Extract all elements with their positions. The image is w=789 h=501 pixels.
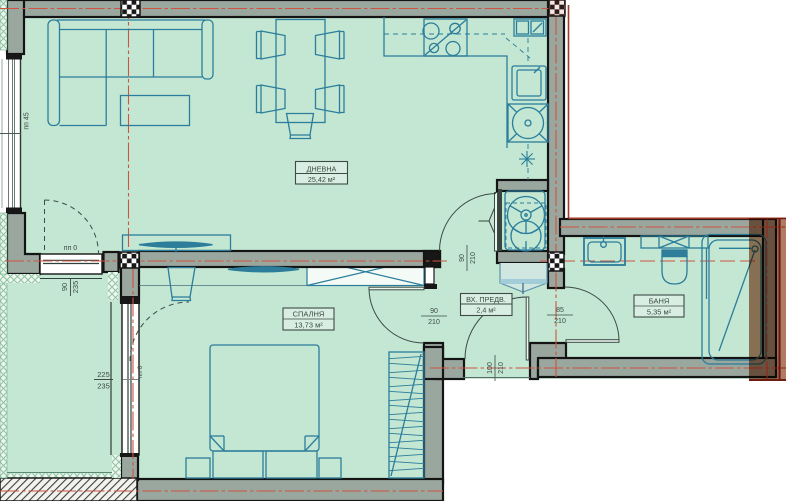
svg-text:210: 210	[470, 252, 477, 264]
svg-text:25,42 м²: 25,42 м²	[308, 175, 336, 184]
svg-text:пп 0: пп 0	[137, 365, 144, 378]
svg-text:90: 90	[459, 254, 466, 262]
svg-text:5,35 м²: 5,35 м²	[647, 308, 672, 317]
svg-text:225: 225	[97, 370, 110, 379]
svg-text:100: 100	[487, 362, 494, 374]
svg-text:пп 45: пп 45	[24, 112, 31, 129]
svg-text:2,4 м²: 2,4 м²	[476, 306, 496, 315]
svg-text:210: 210	[428, 319, 440, 326]
svg-text:ВХ. ПРЕДВ.: ВХ. ПРЕДВ.	[466, 295, 506, 304]
svg-text:СПАЛНЯ: СПАЛНЯ	[293, 310, 325, 319]
svg-text:235: 235	[97, 382, 110, 391]
svg-text:ДНЕВНА: ДНЕВНА	[307, 164, 337, 173]
svg-text:85: 85	[556, 307, 564, 314]
svg-text:БАНЯ: БАНЯ	[649, 297, 670, 306]
svg-text:13,73 м²: 13,73 м²	[294, 321, 323, 330]
svg-text:пп 0: пп 0	[64, 245, 78, 252]
svg-text:210: 210	[554, 318, 566, 325]
svg-text:210: 210	[498, 362, 505, 374]
svg-text:90: 90	[60, 283, 69, 291]
svg-text:90: 90	[430, 308, 438, 315]
svg-text:235: 235	[71, 281, 80, 294]
